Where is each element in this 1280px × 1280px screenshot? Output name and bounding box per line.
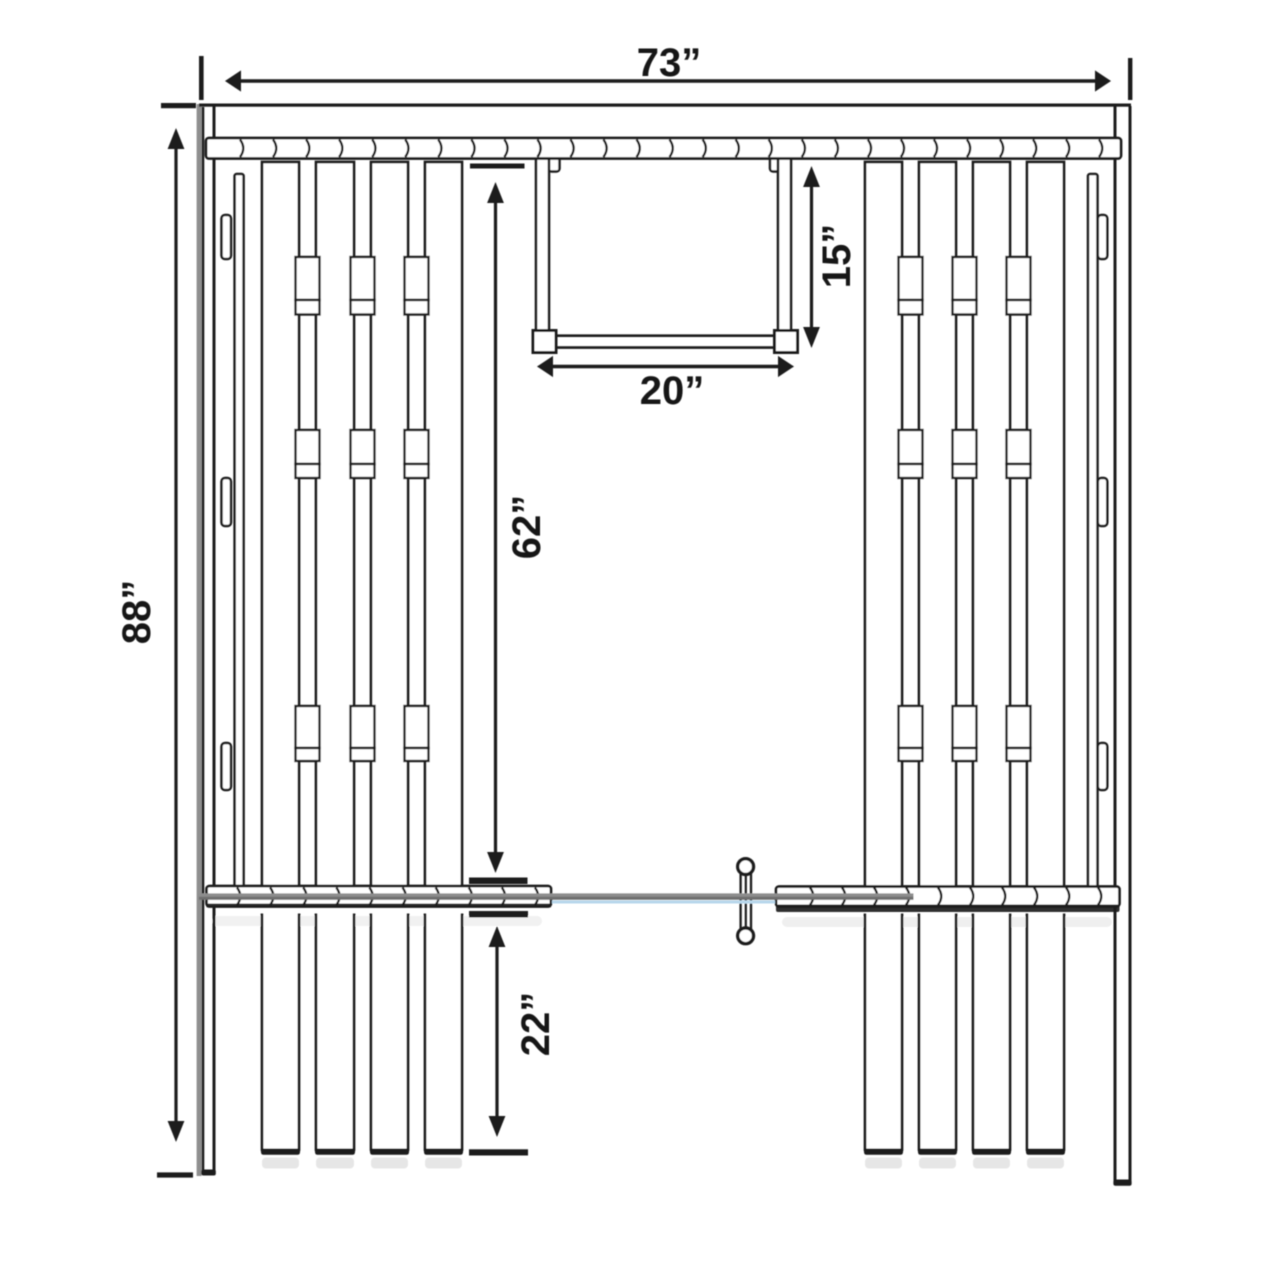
svg-text:20”: 20” xyxy=(640,369,705,413)
svg-text:73”: 73” xyxy=(637,41,702,85)
svg-text:62”: 62” xyxy=(505,495,549,560)
svg-text:15”: 15” xyxy=(815,224,859,289)
svg-text:22”: 22” xyxy=(514,992,558,1057)
svg-text:88”: 88” xyxy=(115,580,159,645)
